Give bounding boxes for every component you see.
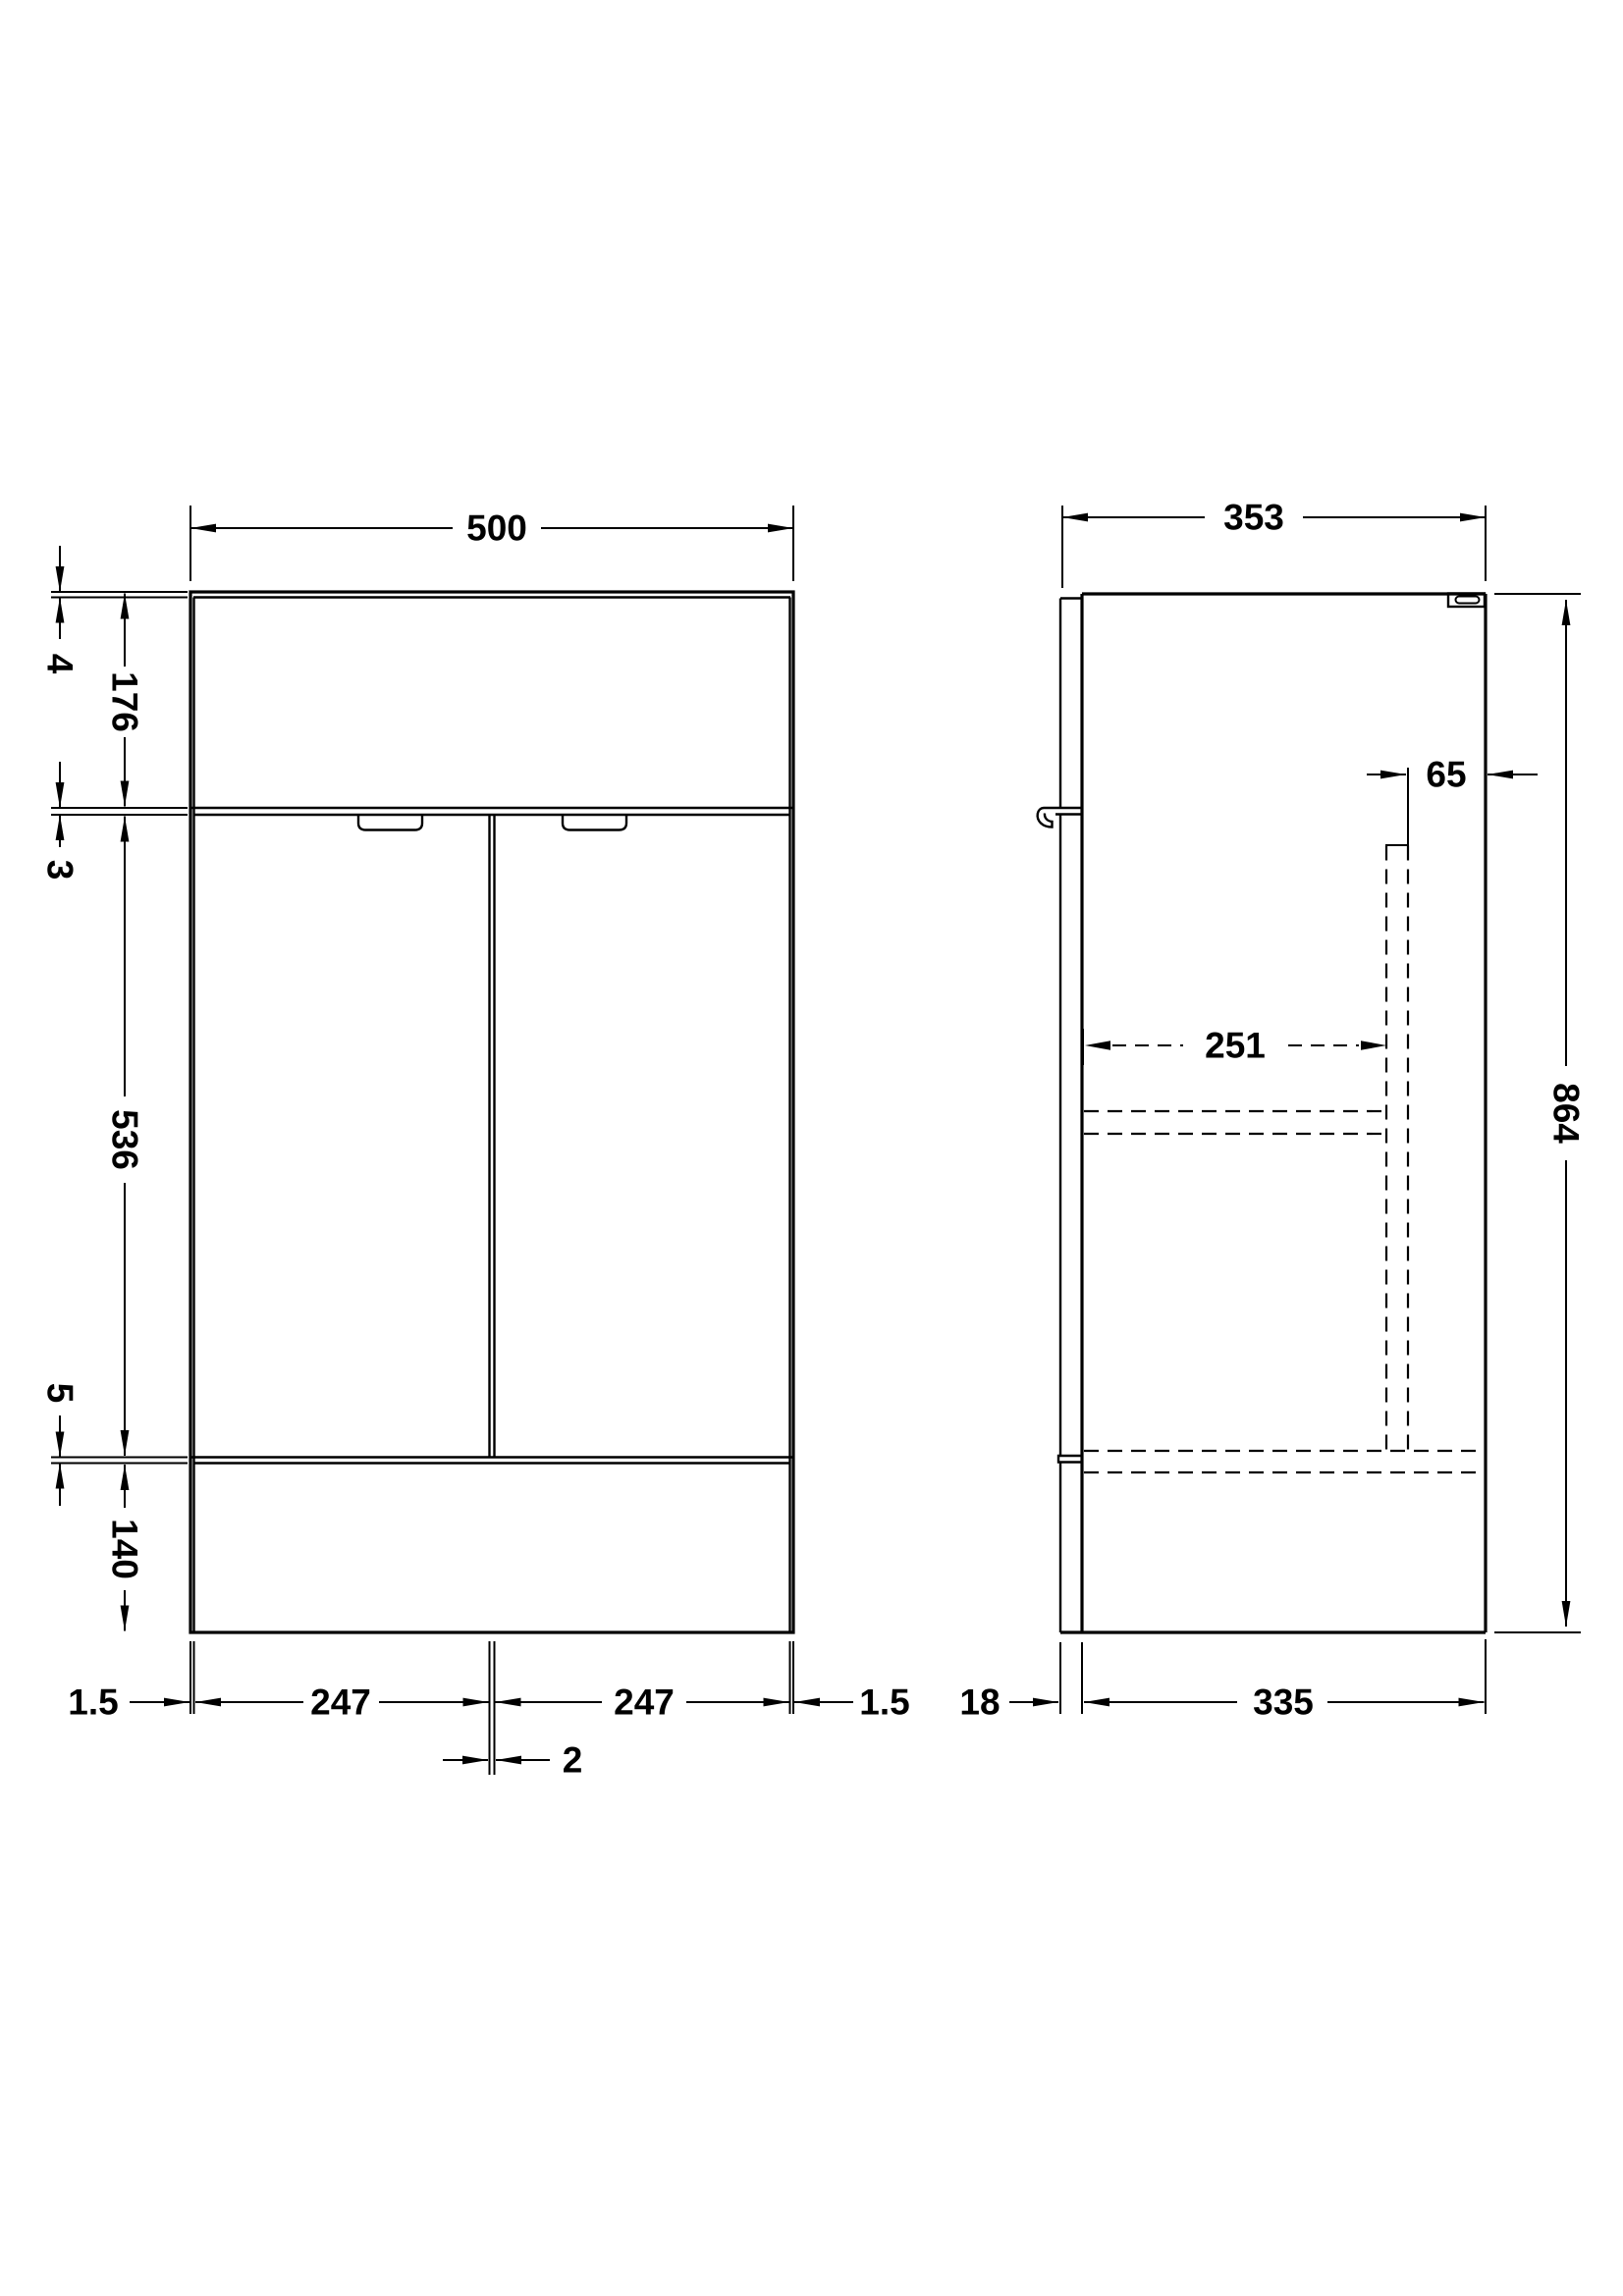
front-outline xyxy=(190,592,793,1632)
dim-front-upper-panel-height: 176 xyxy=(105,594,145,807)
front-bottom-extension-lines xyxy=(190,1641,793,1775)
dim-front-overall-width-label: 500 xyxy=(466,508,527,549)
dim-front-left-door-width-label: 247 xyxy=(310,1682,371,1723)
dim-front-right-edge-gap-label: 1.5 xyxy=(859,1682,909,1723)
dim-front-worktop-thickness: 4 xyxy=(40,546,81,674)
dim-front-right-edge-gap: 1.5 xyxy=(794,1682,910,1723)
dim-side-overall-depth: 353 xyxy=(1062,498,1486,589)
dim-front-left-door-width: 247 xyxy=(195,1682,489,1723)
dim-side-plinth-recess: 18 xyxy=(959,1682,1058,1723)
dim-front-left-edge-gap-label: 1.5 xyxy=(68,1682,118,1723)
dim-front-door-height-label: 536 xyxy=(105,1109,145,1170)
dim-front-right-door-width: 247 xyxy=(496,1682,789,1723)
dim-side-overall-depth-label: 353 xyxy=(1223,498,1284,538)
dim-front-door-bottom-gap-label: 5 xyxy=(40,1383,81,1404)
dim-side-overall-height: 864 xyxy=(1494,594,1587,1632)
dim-side-body-depth-label: 335 xyxy=(1253,1682,1314,1723)
dim-front-door-top-gap-label: 3 xyxy=(40,860,81,881)
door-handle-left xyxy=(358,815,422,830)
dim-side-body-depth: 335 xyxy=(1084,1682,1485,1723)
dim-side-back-clearance: 65 xyxy=(1367,755,1538,845)
dim-front-door-top-gap: 3 xyxy=(40,762,81,880)
dim-side-internal-depth: 251 xyxy=(1083,1026,1386,1066)
side-view: 353 251 65 864 xyxy=(959,498,1586,1723)
dim-side-plinth-recess-label: 18 xyxy=(959,1682,1000,1723)
hidden-shelf xyxy=(1084,1111,1386,1134)
dim-side-back-clearance-label: 65 xyxy=(1426,755,1466,795)
door-handle-right xyxy=(563,815,626,830)
side-outline xyxy=(1060,594,1486,1632)
dim-front-center-gap: 2 xyxy=(443,1740,582,1781)
dim-front-upper-panel-height-label: 176 xyxy=(105,671,145,732)
dim-front-plinth-height: 140 xyxy=(105,1465,145,1631)
dim-front-overall-width: 500 xyxy=(190,506,793,581)
dim-front-worktop-thickness-label: 4 xyxy=(40,654,81,674)
front-door-bottom-line xyxy=(190,1458,793,1464)
dim-side-internal-depth-label: 251 xyxy=(1205,1026,1266,1066)
side-front-panel xyxy=(1060,599,1082,809)
hidden-chase xyxy=(1385,845,1409,1451)
front-door-divider xyxy=(490,815,495,1458)
dim-front-left-edge-gap: 1.5 xyxy=(68,1682,189,1723)
dim-side-overall-height-label: 864 xyxy=(1546,1083,1587,1144)
hidden-bottom-panel xyxy=(1084,1451,1486,1472)
side-door-profile xyxy=(1038,808,1082,1463)
dim-front-plinth-height-label: 140 xyxy=(105,1519,145,1579)
dim-front-center-gap-label: 2 xyxy=(563,1740,583,1781)
vanity-unit-technical-drawing: 500 4 176 3 xyxy=(0,0,1623,2296)
dim-front-door-height: 536 xyxy=(105,817,145,1457)
side-door-bottom xyxy=(1058,1456,1082,1463)
front-view: 500 4 176 3 xyxy=(40,506,910,1781)
dim-front-door-bottom-gap: 5 xyxy=(40,1383,81,1506)
front-door-top-line xyxy=(190,808,793,815)
dim-front-right-door-width-label: 247 xyxy=(614,1682,675,1723)
